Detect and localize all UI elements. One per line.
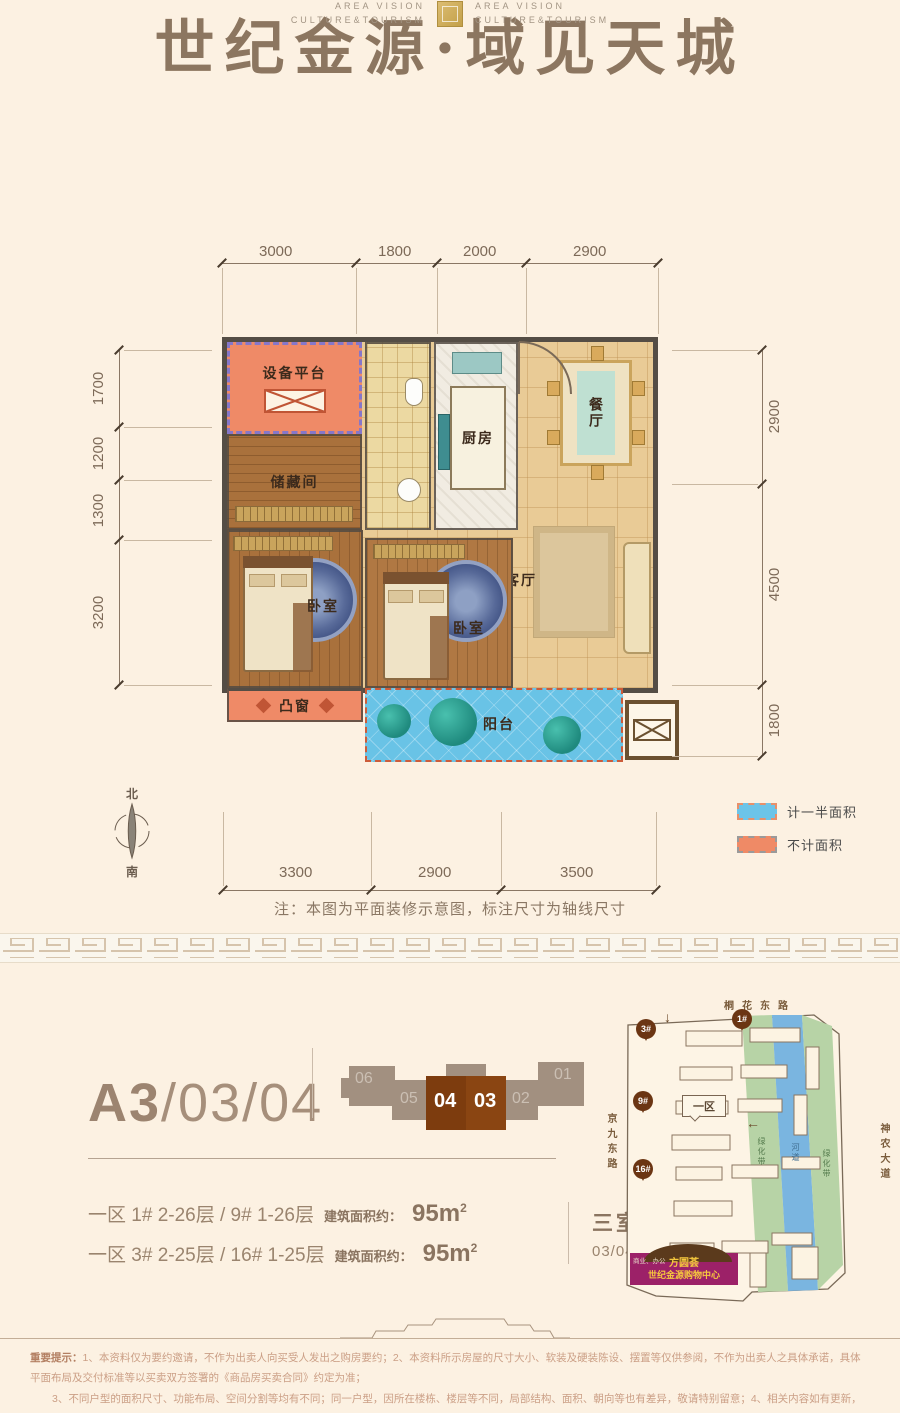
dim-ext: [658, 268, 659, 334]
dim-value: 1200: [90, 437, 107, 470]
half-area-swatch: [737, 803, 777, 820]
brand-seal-icon: [437, 1, 463, 27]
legend-row-excluded-area: 不计面积: [737, 835, 857, 854]
greenbelt-label: 绿化带: [821, 1149, 832, 1179]
plant-icon: [429, 698, 477, 746]
room-label: 凸窗: [279, 696, 311, 716]
room-bedroom-2: 卧室: [365, 538, 513, 688]
chair-icon: [632, 430, 645, 445]
area-value: 95m2: [412, 1200, 467, 1228]
stack-step: [341, 1078, 349, 1098]
stack-unit-label-highlight: 04: [434, 1090, 456, 1113]
bed-icon: [383, 572, 449, 680]
dim-value: 3300: [279, 864, 312, 881]
xbox-symbol-icon: [633, 719, 671, 741]
dim-ext: [356, 268, 357, 334]
dim-ext: [656, 812, 657, 886]
building-marker-1: 1#: [732, 1009, 752, 1029]
floor-plan: 设备平台 储藏间 厨房 餐厅: [215, 330, 685, 775]
room-label: 储藏间: [271, 472, 319, 492]
dim-value: 1300: [90, 494, 107, 527]
arrow-down-icon: ↓: [664, 1009, 671, 1025]
dim-ext: [222, 268, 223, 334]
compass-south-label: 南: [102, 863, 162, 880]
road-label-top: 桐花东路: [680, 997, 840, 1012]
meander-border: [0, 933, 900, 963]
brand-text-right: AREA VISIONCULTURE&TOURISM: [475, 0, 609, 27]
zone-bubble: 一区: [682, 1095, 726, 1117]
room-bathroom: [365, 342, 431, 530]
building-marker-16: 16#: [633, 1159, 653, 1179]
dim-ext: [501, 812, 502, 886]
brand-text-left: AREA VISIONCULTURE&TOURISM: [291, 0, 425, 27]
dim-ext: [437, 268, 438, 334]
unit-info-row: 一区 1# 2-26层 / 9# 1-26层 建筑面积约： 95m2: [88, 1200, 467, 1228]
dim-value: 3000: [259, 243, 292, 260]
dim-ext: [672, 685, 758, 686]
chair-icon: [591, 465, 604, 480]
divider: [312, 1048, 313, 1118]
wardrobe: [235, 506, 353, 522]
dim-value: 3200: [90, 596, 107, 629]
brand-bar: AREA VISIONCULTURE&TOURISM AREA VISIONCU…: [0, 0, 900, 27]
xbox-symbol-icon: [264, 389, 326, 413]
sink-icon: [397, 478, 421, 502]
disclaimer-line-1: 重要提示：1、本资料仅为要约邀请，不作为出卖人向买受人发出之购房要约；2、本资料…: [30, 1348, 870, 1389]
room-bedroom-1: 卧室: [227, 530, 363, 688]
room-label: 卧室: [307, 596, 339, 616]
stack-unit-label: 06: [355, 1070, 373, 1088]
plant-icon: [543, 716, 581, 754]
compass: 北 南: [102, 785, 162, 880]
disclaimer-line-2: 3、不同户型的面积尺寸、功能布局、空间分割等均有不同；同一户型，因所在楼栋、楼层…: [30, 1389, 870, 1413]
divider: [88, 1158, 556, 1159]
room-label: 设备平台: [263, 363, 327, 383]
mall-name: 方圆荟: [669, 1258, 699, 1270]
balcony-label: 阳台: [483, 714, 515, 734]
flyer-page: 世纪金源·域见天城 AREA VISIONCULTURE&TOURISM ARE…: [0, 0, 900, 1413]
stack-unit-label: 02: [512, 1090, 530, 1108]
ac-platform: [625, 700, 679, 760]
room-equipment-platform: 设备平台: [227, 342, 362, 434]
stack-unit-label-highlight: 03: [474, 1090, 496, 1113]
building-silhouette-icon: [340, 1317, 570, 1339]
dim-ext: [526, 268, 527, 334]
diamond-icon: [319, 698, 335, 714]
kitchen-sink-icon: [452, 352, 502, 374]
unit-info-row: 一区 3# 2-25层 / 16# 1-25层 建筑面积约： 95m2: [88, 1240, 477, 1268]
divider: [568, 1202, 569, 1264]
legend-label: 计一半面积: [787, 802, 857, 821]
dim-value: 4500: [766, 568, 783, 601]
dim-value: 1800: [766, 704, 783, 737]
room-label: 餐厅: [586, 397, 606, 429]
divider: [0, 1338, 900, 1339]
dim-value: 2000: [463, 243, 496, 260]
plant-icon: [377, 704, 411, 738]
room-label: 厨房: [462, 428, 494, 448]
dim-line-top: [222, 263, 658, 264]
dim-line-bottom: [223, 890, 656, 891]
bay-window: 凸窗: [227, 688, 363, 722]
chair-icon: [547, 430, 560, 445]
chair-icon: [632, 381, 645, 396]
dim-ext: [223, 812, 224, 886]
entry-door-icon: [515, 340, 575, 400]
dim-value: 3500: [560, 864, 593, 881]
stove-icon: [438, 414, 450, 470]
bed-icon: [243, 556, 313, 672]
site-map: 桐花东路 京九东路 神农大道 绿化带 河道 绿化带 3# 1# 9# 16# 一…: [600, 995, 895, 1320]
stack-unit-label: 01: [554, 1066, 572, 1084]
chair-icon: [591, 346, 604, 361]
building-marker-9: 9#: [633, 1091, 653, 1111]
toilet-icon: [405, 378, 423, 406]
disclaimer: 重要提示：1、本资料仅为要约邀请，不作为出卖人向买受人发出之购房要约；2、本资料…: [30, 1348, 870, 1413]
dim-ext: [672, 350, 758, 351]
compass-north-label: 北: [102, 785, 162, 802]
road-label-left: 京九东路: [603, 1113, 618, 1173]
dim-value: 2900: [573, 243, 606, 260]
unit-code: A3/03/04: [88, 1072, 323, 1134]
plan-note: 注：本图为平面装修示意图，标注尺寸为轴线尺寸: [0, 898, 900, 919]
room-label: 卧室: [453, 618, 485, 638]
area-value: 95m2: [423, 1240, 478, 1268]
sofa-icon: [623, 542, 651, 654]
stack-unit-label: 05: [400, 1090, 418, 1108]
dim-ext: [124, 350, 212, 351]
area-label: 建筑面积约：: [324, 1206, 402, 1225]
dim-ext: [672, 756, 758, 757]
dim-ext: [371, 812, 372, 886]
compass-needle-icon: [110, 802, 154, 860]
unit-code-suffix: /03/04: [161, 1073, 323, 1133]
dim-ext: [124, 480, 212, 481]
buildings-floors: 一区 3# 2-25层 / 16# 1-25层: [88, 1240, 325, 1267]
area-label: 建筑面积约：: [335, 1246, 413, 1265]
stack-step: [446, 1064, 486, 1076]
dim-line-right: [762, 350, 763, 756]
dim-ext: [124, 685, 212, 686]
dim-ext: [124, 427, 212, 428]
living-rug: [533, 526, 615, 638]
room-kitchen: 厨房: [434, 342, 518, 530]
river-label: 河道: [790, 1143, 801, 1163]
wardrobe: [373, 544, 465, 559]
area-legend: 计一半面积 不计面积: [737, 802, 857, 854]
mall-name-2: 世纪金源购物中心: [648, 1270, 720, 1281]
road-label-right: 神农大道: [876, 1123, 891, 1183]
legend-row-half-area: 计一半面积: [737, 802, 857, 821]
building-marker-3: 3#: [636, 1019, 656, 1039]
dim-value: 1800: [378, 243, 411, 260]
excluded-area-swatch: [737, 836, 777, 853]
greenbelt-label: 绿化带: [756, 1137, 767, 1167]
kitchen-island: 厨房: [450, 386, 506, 490]
meander-pattern-icon: [0, 934, 900, 962]
mall-side-note: 商业、办公: [633, 1255, 666, 1265]
legend-label: 不计面积: [787, 835, 843, 854]
dim-value: 1700: [90, 372, 107, 405]
wardrobe: [233, 536, 333, 551]
room-storage: 储藏间: [227, 434, 362, 530]
arrow-left-icon: ←: [746, 1115, 760, 1131]
dim-value: 2900: [766, 400, 783, 433]
dim-ext: [672, 484, 758, 485]
buildings-floors: 一区 1# 2-26层 / 9# 1-26层: [88, 1200, 314, 1227]
dim-line-left: [119, 350, 120, 685]
dim-ext: [124, 540, 212, 541]
diamond-icon: [256, 698, 272, 714]
dim-value: 2900: [418, 864, 451, 881]
unit-code-main: A3: [88, 1073, 161, 1133]
dining-runner: 餐厅: [577, 371, 615, 455]
